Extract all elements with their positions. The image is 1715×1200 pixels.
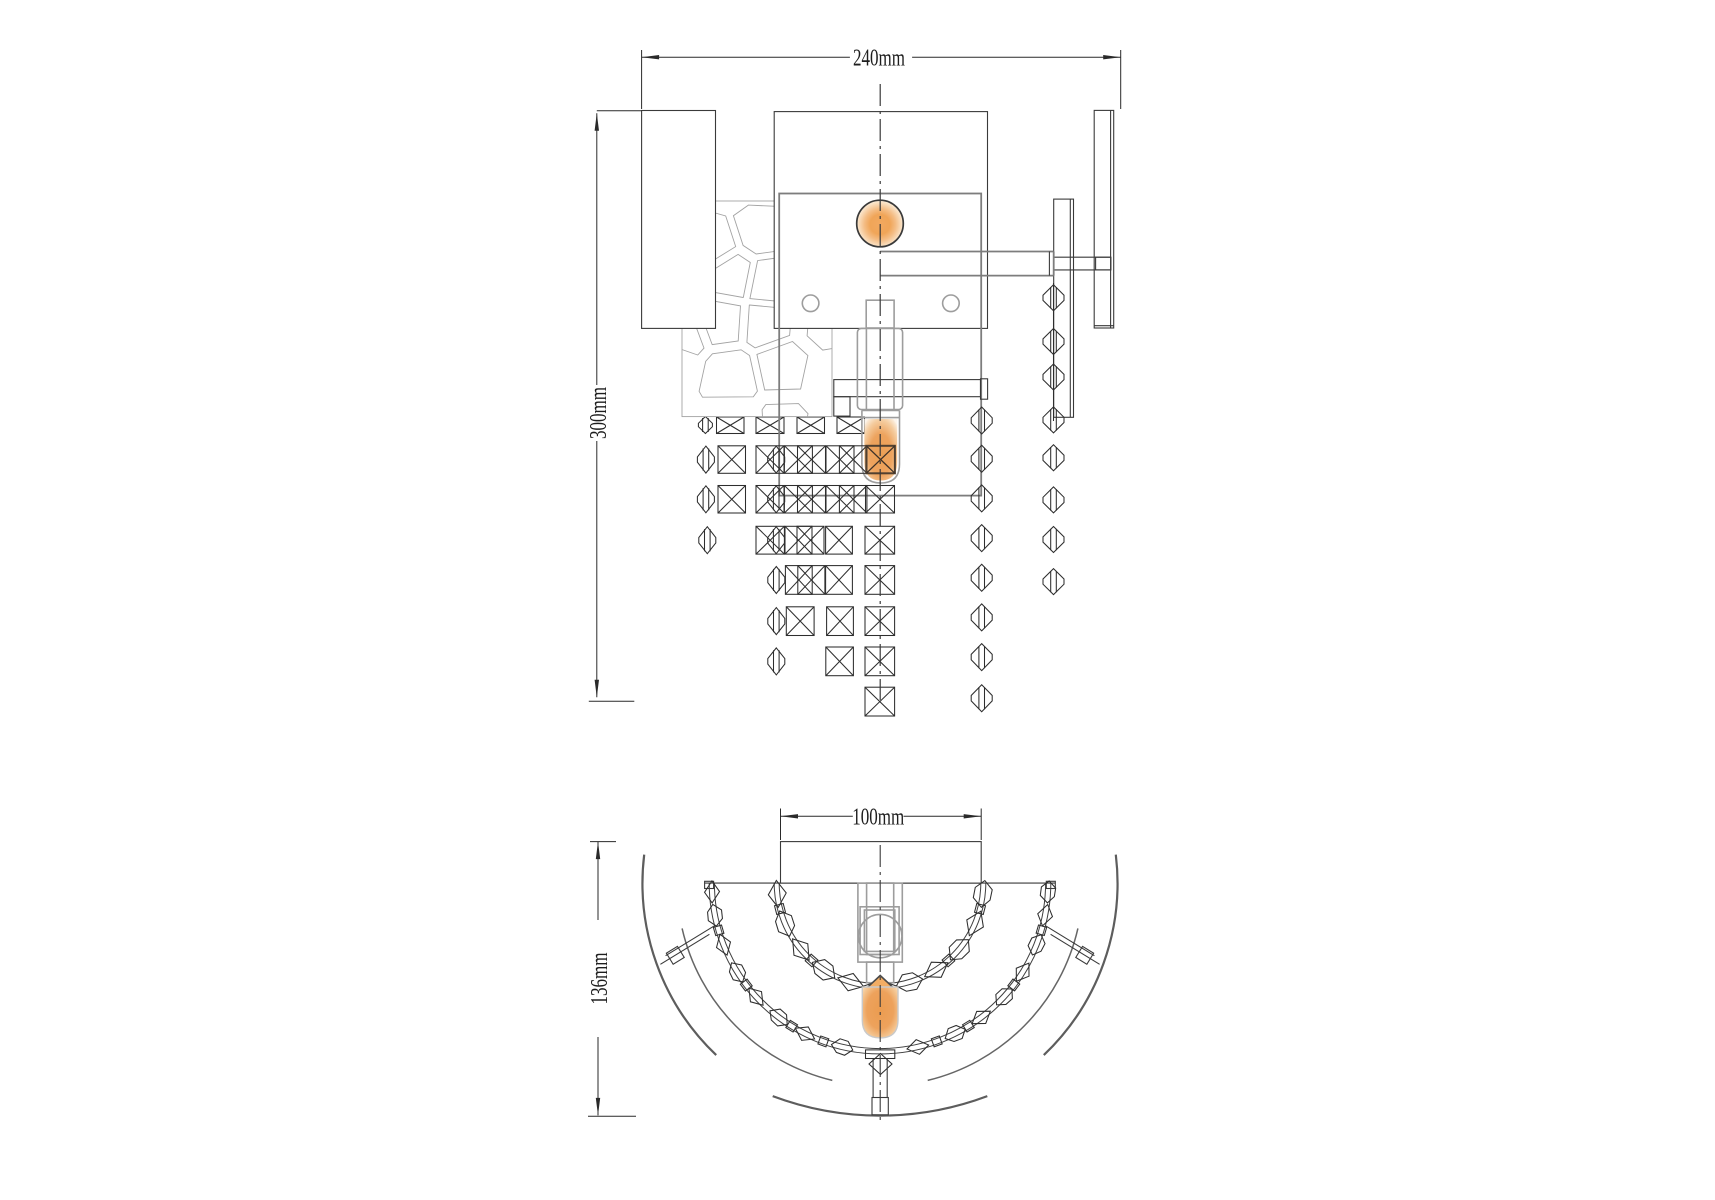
svg-text:136mm: 136mm — [587, 952, 613, 1004]
svg-text:240mm: 240mm — [853, 45, 905, 71]
svg-text:100mm: 100mm — [852, 804, 904, 830]
svg-text:300mm: 300mm — [586, 387, 612, 439]
